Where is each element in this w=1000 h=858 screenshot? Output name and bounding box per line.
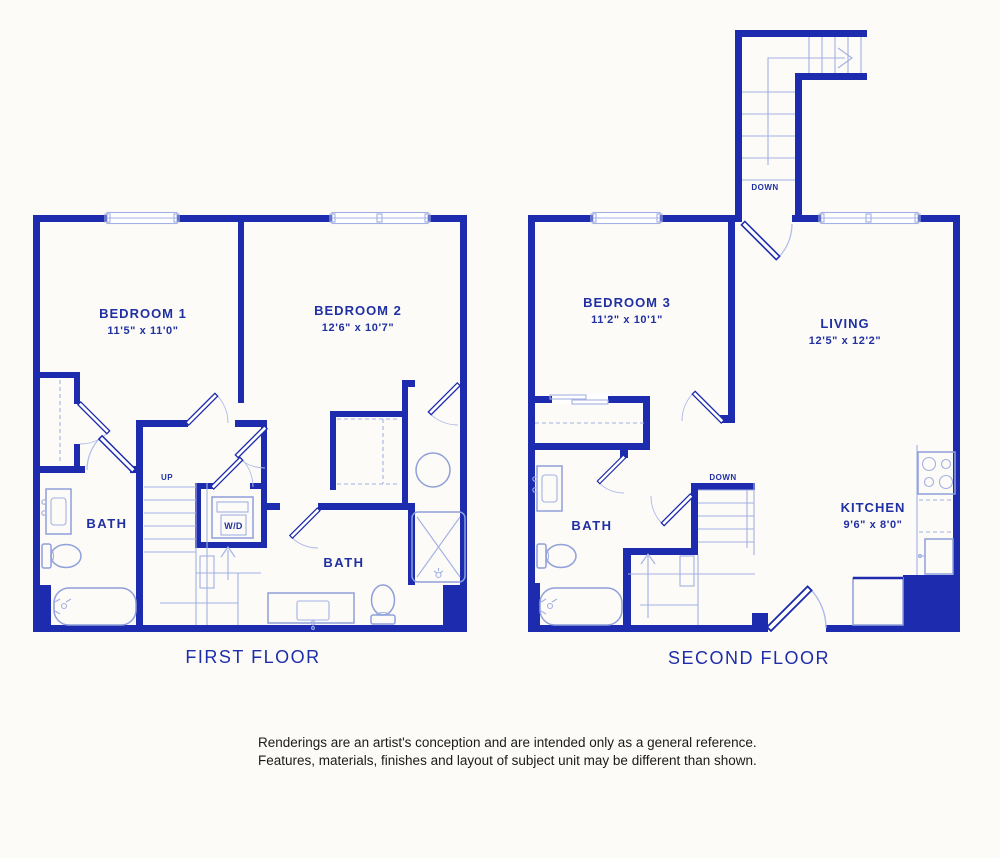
washer-dryer-label: W/D (224, 521, 243, 531)
first-floor-plan: BEDROOM 1 11'5" x 11'0" BEDROOM 2 12'6" … (33, 213, 467, 668)
room-label-living: LIVING (820, 316, 869, 331)
shower-icon (412, 512, 465, 582)
door-icon (767, 586, 826, 631)
window-icon (105, 213, 179, 224)
room-dims-kitchen: 9'6" x 8'0" (844, 519, 903, 531)
stairwell-down-label: DOWN (751, 183, 778, 192)
second-floor-title: SECOND FLOOR (668, 648, 830, 668)
sliding-closet-door-icon (550, 394, 608, 404)
door-icon (682, 391, 724, 423)
vanity-icon (268, 593, 354, 629)
second-floor-plan: BEDROOM 3 11'2" x 10'1" LIVING 12'5" x 1… (528, 30, 960, 668)
disclaimer-line-2: Features, materials, finishes and layout… (258, 753, 757, 768)
door-icon (290, 508, 320, 548)
sink-icon (533, 466, 562, 511)
door-icon (597, 455, 626, 493)
disclaimer-line-1: Renderings are an artist's conception an… (258, 735, 757, 750)
door-icon (211, 457, 253, 489)
door-icon (186, 393, 228, 425)
room-label-bedroom1: BEDROOM 1 (99, 306, 187, 321)
stove-icon (918, 452, 955, 494)
floor-plan-drawing: BEDROOM 1 11'5" x 11'0" BEDROOM 2 12'6" … (0, 0, 1000, 858)
door-icon (428, 383, 460, 425)
room-dims-living: 12'5" x 12'2" (809, 335, 881, 347)
room-label-bath: BATH (571, 518, 612, 533)
stairwell-exterior (735, 30, 867, 222)
bathtub-icon (540, 588, 622, 625)
window-icon (591, 213, 662, 224)
soaking-tub-icon (416, 453, 450, 487)
disclaimer: Renderings are an artist's conception an… (258, 735, 757, 768)
window-icon (819, 213, 920, 224)
room-label-bath1: BATH (86, 516, 127, 531)
room-label-bath2: BATH (323, 555, 364, 570)
stairs-down-label: DOWN (709, 473, 736, 482)
stairs-up-icon (144, 483, 261, 625)
room-label-bedroom3: BEDROOM 3 (583, 295, 671, 310)
dishwasher-icon (853, 578, 903, 625)
toilet-icon (371, 585, 395, 624)
sink-icon (42, 489, 71, 534)
room-dims-bedroom1: 11'5" x 11'0" (107, 325, 178, 337)
toilet-icon (537, 544, 576, 568)
washer-dryer-icon (212, 497, 253, 538)
floorplan-page: BEDROOM 1 11'5" x 11'0" BEDROOM 2 12'6" … (0, 0, 1000, 858)
window-icon (330, 213, 430, 224)
stairs-up-label: UP (161, 473, 173, 482)
door-icon (741, 221, 792, 259)
closet-shelf (337, 419, 400, 484)
room-label-kitchen: KITCHEN (841, 500, 906, 515)
bathtub-icon (54, 588, 136, 625)
door-icon (651, 494, 693, 526)
room-dims-bedroom3: 11'2" x 10'1" (591, 314, 663, 326)
room-dims-bedroom2: 12'6" x 10'7" (322, 322, 394, 334)
toilet-icon (42, 544, 81, 568)
room-label-bedroom2: BEDROOM 2 (314, 303, 402, 318)
fridge-icon (918, 539, 953, 574)
first-floor-title: FIRST FLOOR (185, 647, 320, 667)
